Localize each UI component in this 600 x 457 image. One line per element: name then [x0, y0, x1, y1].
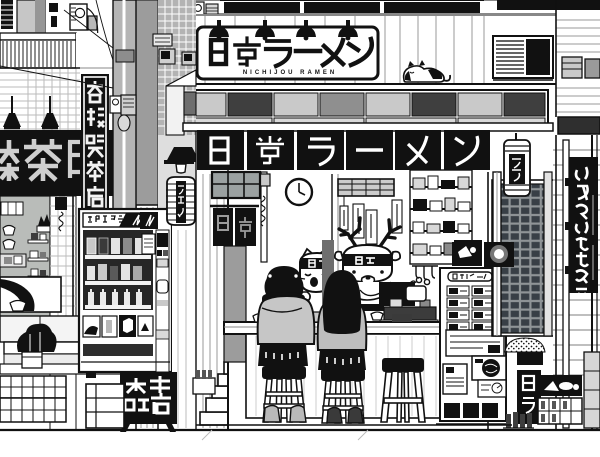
svg-text:NICHIJOU RAMEN: NICHIJOU RAMEN [243, 70, 337, 76]
